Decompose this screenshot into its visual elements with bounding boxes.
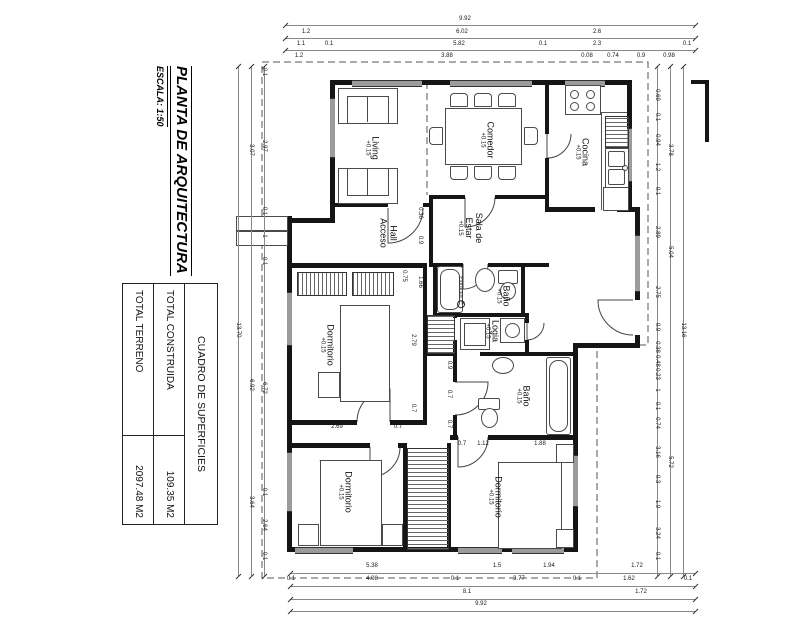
dimension-value: 0.36 — [417, 207, 423, 219]
dimension-value: 3.64 — [248, 496, 254, 508]
dimension-value: 0.1 — [539, 41, 547, 47]
washing-machine — [500, 318, 525, 343]
dimension-value: 13.70 — [235, 322, 241, 337]
dimension-value: 1.2 — [295, 53, 303, 59]
washbasin — [492, 357, 514, 374]
room-label-hall-acceso: HallAcceso — [378, 218, 399, 248]
dimension-value: 5.82 — [453, 41, 465, 47]
dimension-value: 0.74 — [607, 53, 619, 59]
dimension-value: 3.16 — [654, 446, 660, 458]
dimension-value: 1 — [261, 234, 267, 237]
wall — [453, 415, 457, 437]
dimension-value: 0.1 — [261, 552, 267, 560]
window — [295, 547, 353, 554]
dimension-value: 2.64 — [261, 519, 267, 531]
dimension-value: 0.9 — [446, 361, 452, 369]
wall — [453, 352, 457, 382]
dimension-value: 3.78 — [667, 144, 673, 156]
drawing-sheet: PLANTA DE ARQUITECTURA ESCALA: 1:50 CUAD… — [0, 0, 800, 640]
dimension-value: 1.2 — [302, 29, 310, 35]
dimension-value: 0.94 — [654, 134, 660, 146]
room-label-dormitorio-2: Dormitorio+0.15 — [336, 471, 353, 513]
dimension-value: 0.1 — [287, 576, 295, 582]
extractor-fan-icon — [457, 300, 465, 308]
door-swing-arc — [527, 323, 544, 340]
dimension-value: 0.1 — [261, 207, 267, 215]
dimension-value: 5.38 — [366, 563, 378, 569]
dimension-value: 0.1 — [683, 41, 691, 47]
dimension-value: 0.74 — [654, 417, 660, 429]
dimension-value: 5.04 — [667, 246, 673, 258]
room-label-bano-1: Baño+0.15 — [494, 285, 511, 306]
dimension-value: 1.72 — [635, 589, 647, 595]
dimension-value: 13.16 — [680, 322, 686, 337]
sofa — [338, 88, 398, 124]
wall — [450, 435, 458, 440]
dimension-value: 0.3 — [654, 475, 660, 483]
dimension-value: 3.77 — [513, 576, 525, 582]
dimension-value: 1.2 — [654, 163, 660, 171]
extractor-label: Extractor — [457, 276, 465, 308]
dimension-value: 5.72 — [667, 456, 673, 468]
dimension-value: 1.1 — [297, 41, 305, 47]
stove — [565, 85, 601, 115]
dimension-value: 1.12 — [477, 441, 489, 447]
dimension-value: 6.92 — [248, 379, 254, 391]
dimension-value: 1.9 — [654, 500, 660, 508]
closet-hatch — [427, 315, 455, 354]
dimension-line — [670, 66, 671, 576]
room-label-dormitorio-3: Dormitorio+0.15 — [486, 476, 503, 518]
dimension-line — [238, 66, 239, 576]
wall — [488, 263, 549, 267]
dimension-value: 1 — [654, 388, 660, 391]
window — [287, 452, 292, 512]
dimension-value: 0.1 — [654, 187, 660, 195]
bed — [340, 305, 390, 402]
nightstand — [556, 444, 574, 463]
chair — [524, 127, 538, 145]
dimension-value: 6.72 — [261, 382, 267, 394]
nightstand — [382, 524, 403, 546]
room-label-bano-2: Baño+0.15 — [514, 385, 531, 406]
dimension-value: 3.07 — [248, 144, 254, 156]
dimension-value: 0.98 — [663, 53, 675, 59]
counter-edge — [601, 112, 602, 210]
bed — [498, 462, 562, 549]
dimension-value: 0.1 — [654, 402, 660, 410]
wall — [287, 443, 370, 448]
dimension-value: 2.79 — [410, 334, 416, 346]
wall — [545, 84, 549, 134]
sofa — [338, 168, 398, 204]
closet-hatch — [352, 272, 394, 296]
toilet — [481, 408, 498, 428]
dimension-value: 0.1 — [261, 68, 267, 76]
dimension-value: 1.72 — [631, 563, 643, 569]
nightstand — [298, 524, 319, 546]
wall — [521, 263, 525, 317]
dimension-value: 0.7 — [410, 404, 416, 412]
dimension-value: 8.1 — [463, 589, 471, 595]
chair — [498, 166, 516, 180]
dimension-value: 0.1 — [684, 576, 692, 582]
dimension-value: 0.08 — [581, 53, 593, 59]
washbasin — [475, 268, 495, 292]
wall — [545, 207, 595, 212]
nightstand — [318, 372, 340, 398]
wall — [705, 84, 709, 142]
dimension-value: 6.02 — [456, 29, 468, 35]
chair — [450, 93, 468, 107]
wall — [545, 158, 549, 211]
dimension-line — [285, 25, 695, 26]
closet-hatch — [407, 448, 449, 550]
dimension-value: 0.9 — [654, 323, 660, 331]
wall — [495, 195, 549, 199]
dimension-line — [683, 66, 684, 576]
chair — [429, 127, 443, 145]
dimension-value: 1.94 — [543, 563, 555, 569]
wall — [488, 435, 575, 440]
dimension-value: 0.38 — [654, 341, 660, 353]
dimension-value: 0.7 — [458, 441, 466, 447]
dimension-value: 0.69 — [654, 89, 660, 101]
window — [458, 547, 502, 554]
door-swing-arc — [547, 134, 571, 158]
dimension-value: 9.92 — [459, 16, 471, 22]
chair — [474, 93, 492, 107]
dimension-value: 0.7 — [446, 420, 452, 428]
room-label-dormitorio-1: Dormitorio+0.15 — [318, 324, 335, 366]
wall — [287, 420, 357, 425]
room-label-cocina: Cocina+0.15 — [573, 138, 590, 166]
window — [287, 292, 292, 346]
dimension-value: 0.9 — [637, 53, 645, 59]
dimension-value: 0.1 — [654, 113, 660, 121]
wall — [287, 218, 335, 223]
porch-step — [236, 216, 288, 231]
dimension-value: 0.48 — [654, 355, 660, 367]
dimension-value: 0.9 — [417, 236, 423, 244]
dimension-value: 2.97 — [261, 140, 267, 152]
kitchen-sink — [605, 148, 629, 188]
counter-edge — [601, 112, 627, 113]
closet-hatch — [297, 272, 347, 296]
dimension-value: 2.6 — [593, 29, 601, 35]
room-label-living: Living+0.15 — [363, 136, 380, 160]
dimension-line — [290, 586, 695, 587]
porch-step — [236, 231, 288, 246]
window — [450, 80, 532, 87]
chair — [498, 93, 516, 107]
dimension-value: 1.66 — [417, 276, 423, 288]
dimension-value: 0.7 — [446, 390, 452, 398]
chair — [450, 166, 468, 180]
nightstand — [556, 529, 574, 548]
dimension-value: 2.69 — [331, 424, 343, 430]
chair — [474, 166, 492, 180]
room-label-logia: Logia+0.15 — [483, 320, 500, 342]
wall — [429, 195, 433, 267]
dimension-value: 0.7 — [394, 424, 402, 430]
dimension-value: 0.1 — [451, 576, 459, 582]
dimension-value: 0.1 — [325, 41, 333, 47]
dimension-value: 0.1 — [654, 552, 660, 560]
window — [352, 80, 422, 87]
wall — [287, 263, 427, 268]
dimension-value: 0.1 — [261, 488, 267, 496]
bathtub — [546, 357, 571, 435]
wall — [525, 313, 529, 323]
window — [330, 98, 335, 158]
dimension-line — [285, 50, 695, 51]
wall — [575, 343, 640, 348]
door-swing-arc — [598, 300, 633, 335]
dimension-value: 2.3 — [593, 41, 601, 47]
dimension-value: 0.23 — [654, 368, 660, 380]
dimension-value: 4.08 — [366, 576, 378, 582]
dimension-value: 2.75 — [654, 286, 660, 298]
dimension-line — [290, 573, 695, 574]
dimension-line — [290, 611, 695, 612]
room-label-sala-de-estar: Sala deEstar +0.15 — [456, 213, 484, 244]
dimension-value: 0.1 — [261, 257, 267, 265]
window — [635, 235, 640, 292]
dimension-value: 1.62 — [623, 576, 635, 582]
dimension-line — [290, 599, 695, 600]
dimension-value: 3.88 — [441, 53, 453, 59]
dimension-value: 1.5 — [493, 563, 501, 569]
dimension-value: 2.89 — [654, 226, 660, 238]
counter-hatch — [605, 116, 629, 148]
dimension-value: 0.1 — [573, 576, 581, 582]
room-label-comedor: Comedor+0.15 — [478, 121, 495, 158]
dimension-value: 3.24 — [654, 527, 660, 539]
kitchen-cabinet — [603, 187, 629, 211]
dimension-value: 9.92 — [475, 601, 487, 607]
wall — [480, 352, 575, 356]
dimension-value: 0.75 — [401, 270, 407, 282]
dimension-value: 1.88 — [534, 441, 546, 447]
wall — [429, 195, 465, 199]
dimension-line — [285, 38, 695, 39]
